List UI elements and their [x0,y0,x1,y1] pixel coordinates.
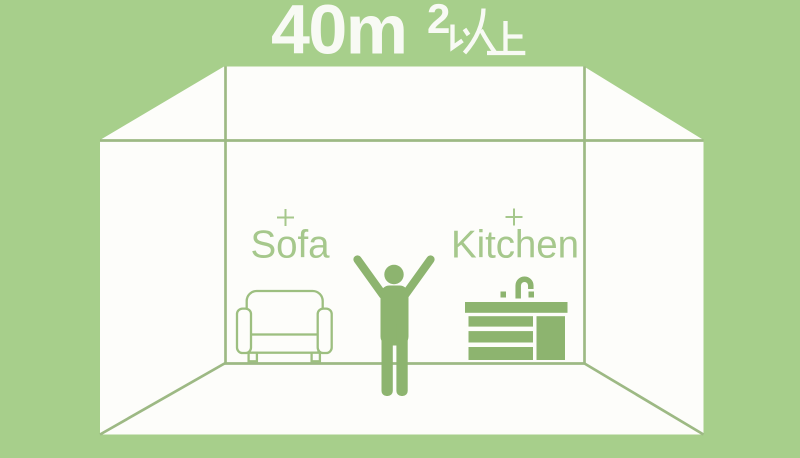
svg-text:Kitchen: Kitchen [451,224,579,267]
svg-text:2: 2 [427,0,450,42]
svg-text:40m: 40m [271,0,408,69]
svg-text:Sofa: Sofa [251,224,331,267]
